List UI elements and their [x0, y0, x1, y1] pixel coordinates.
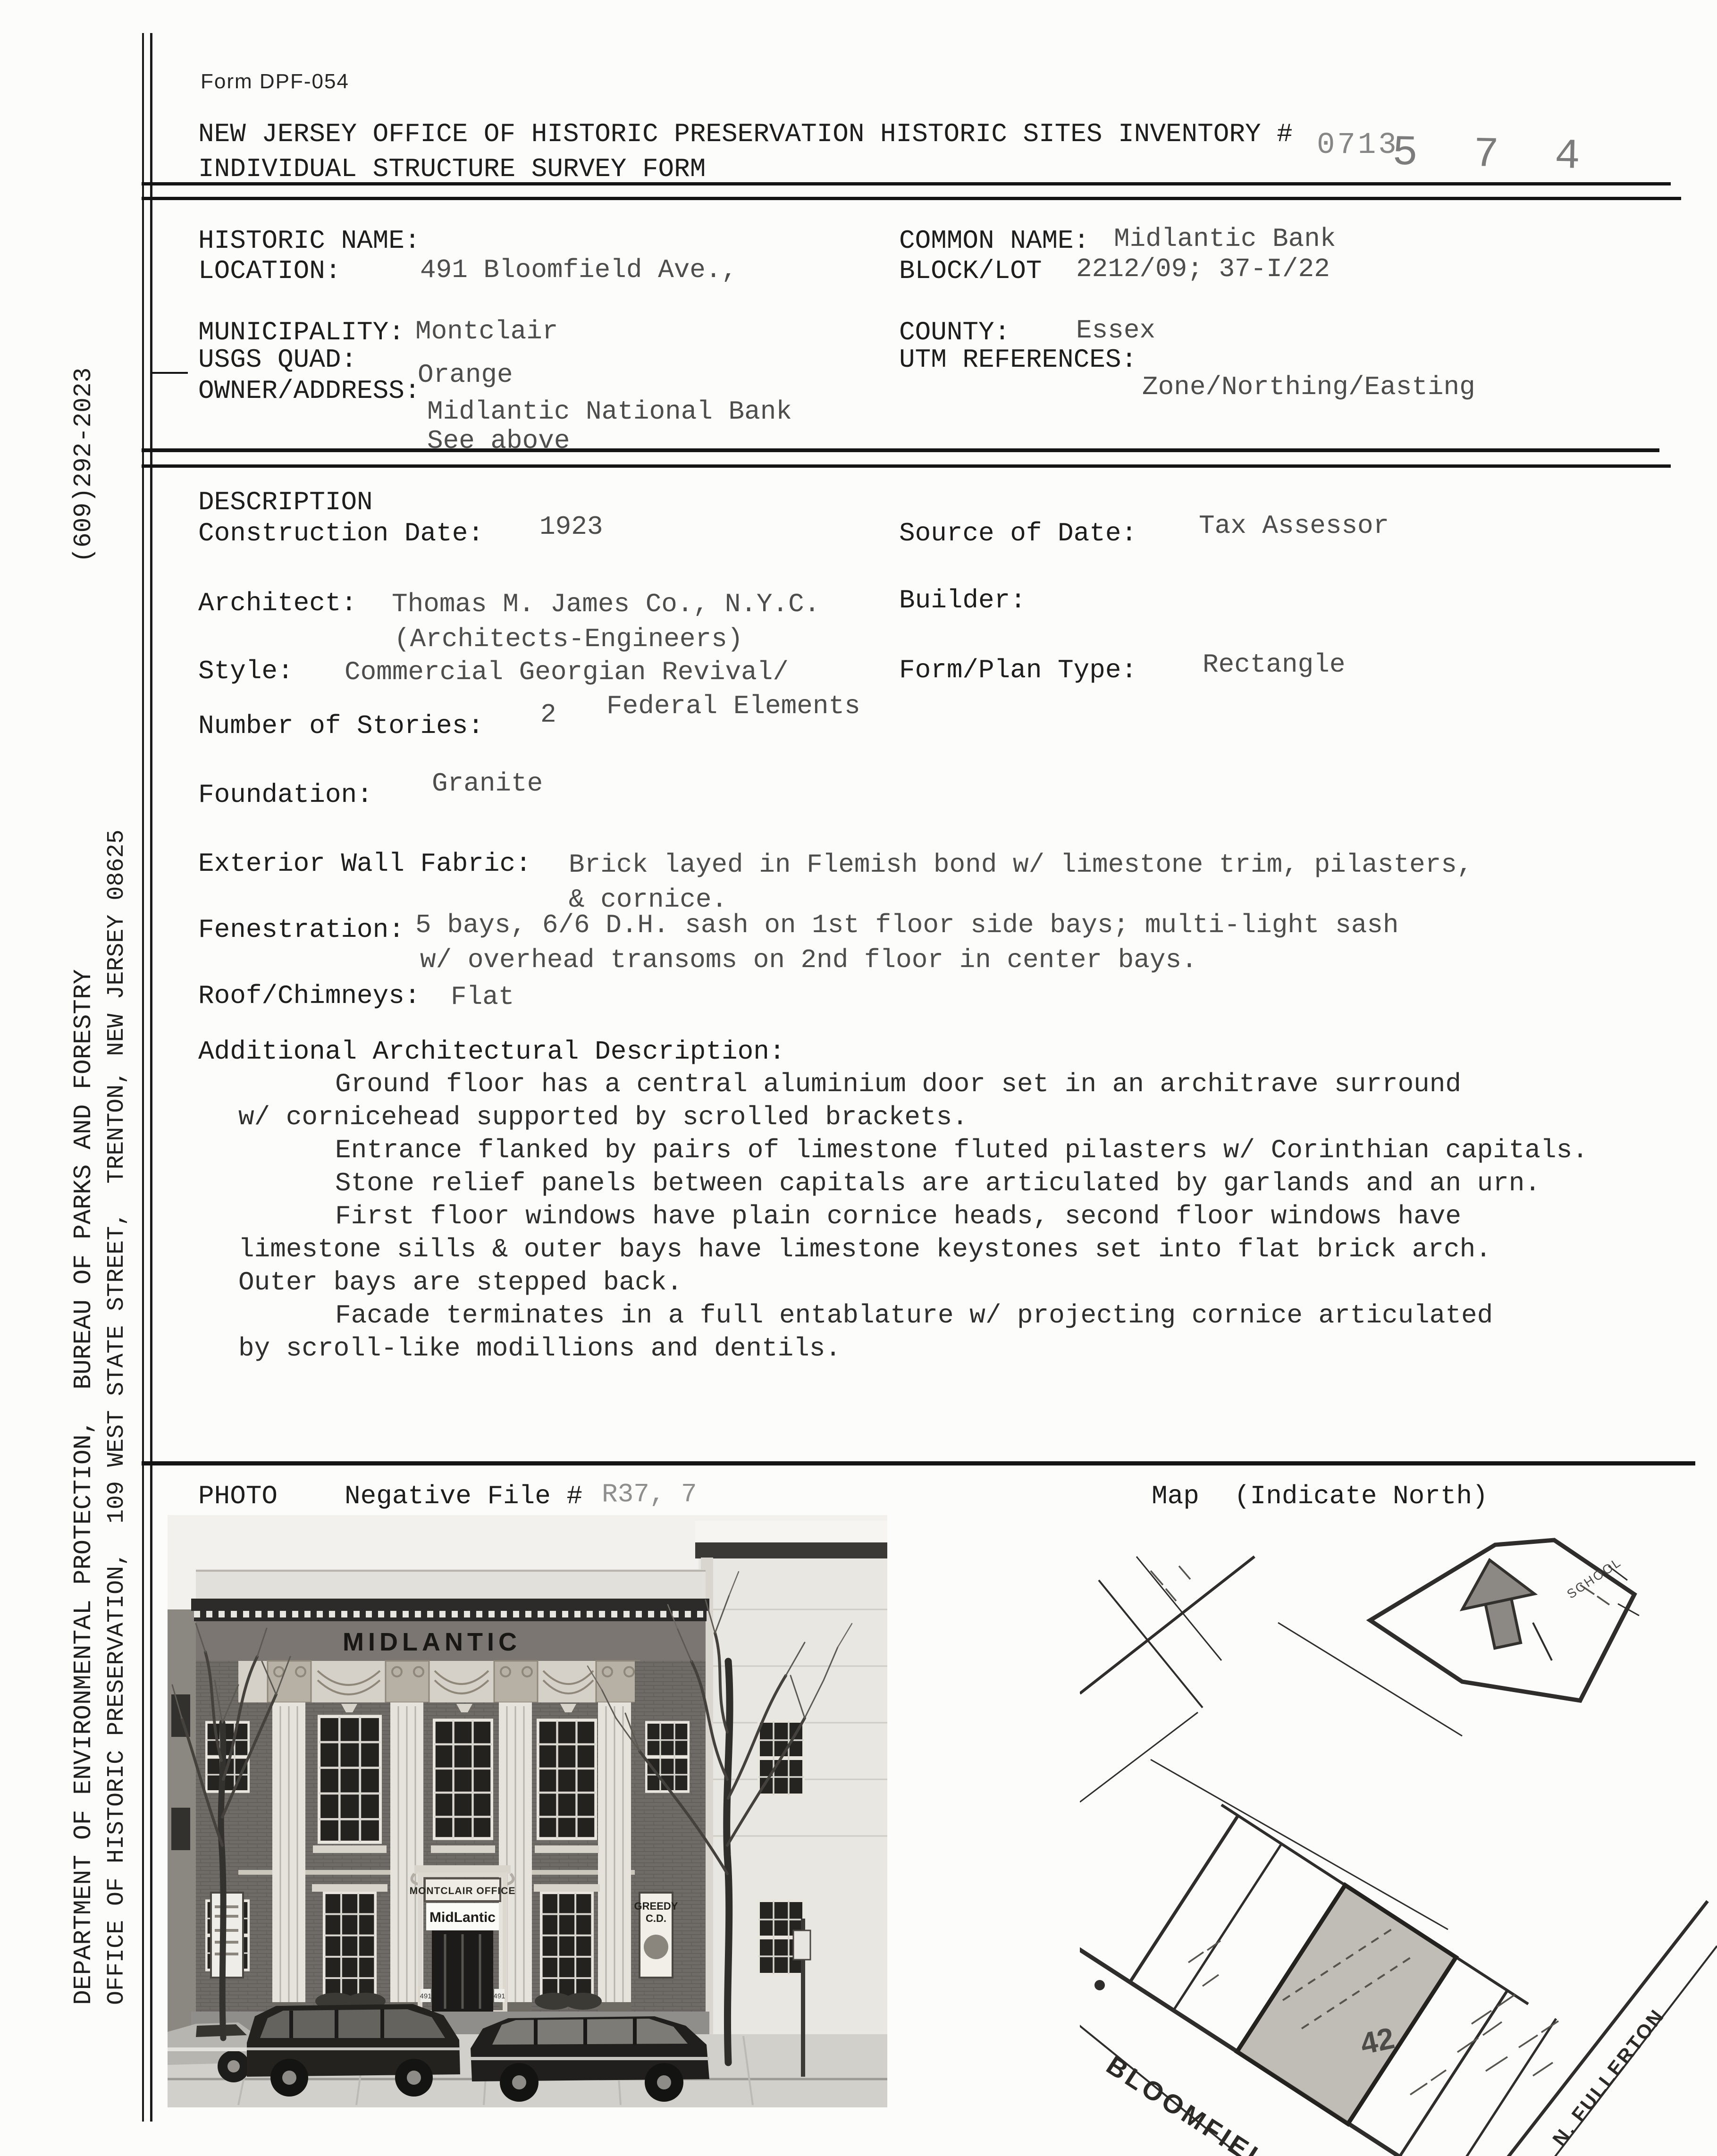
survey-form-page: DEPARTMENT OF ENVIRONMENTAL PROTECTION, … [0, 0, 1717, 2156]
additional-description-label: Additional Architectural Description: [198, 1036, 785, 1067]
number-of-stories-value: 2 [540, 699, 556, 730]
additional-line: Stone relief panels between capitals are… [335, 1168, 1540, 1198]
roof-chimneys-label: Roof/Chimneys: [198, 981, 420, 1011]
source-of-date-label: Source of Date: [899, 518, 1137, 548]
block-lot-label: BLOCK/LOT [899, 256, 1042, 286]
inventory-number-typed: 0713 [1317, 128, 1399, 162]
building-photo: MIDLANTIC [168, 1515, 887, 2107]
exterior-wall-value-line1: Brick layed in Flemish bond w/ limestone… [569, 850, 1473, 880]
foundation-label: Foundation: [198, 780, 373, 810]
usgs-quad-label: USGS QUAD: [198, 345, 357, 375]
fenestration-value-line2: w/ overhead transoms on 2nd floor in cen… [420, 945, 1197, 975]
additional-line: Entrance flanked by pairs of limestone f… [335, 1135, 1588, 1165]
additional-line: w/ cornicehead supported by scrolled bra… [238, 1102, 968, 1132]
roof-chimneys-value: Flat [451, 982, 514, 1012]
architect-label: Architect: [198, 588, 357, 618]
county-label: COUNTY: [899, 317, 1010, 347]
sidebar-phone-text: (609)292-2023 [70, 368, 97, 563]
location-value: 491 Bloomfield Ave., [420, 255, 737, 285]
construction-date-value: 1923 [539, 512, 603, 542]
additional-line: by scroll-like modillions and dentils. [238, 1333, 841, 1364]
negative-file-value: R37, 7 [602, 1479, 697, 1509]
additional-line: limestone sills & outer bays have limest… [238, 1234, 1491, 1264]
foundation-value: Granite [432, 768, 543, 799]
location-label: LOCATION: [198, 256, 341, 286]
map-label: Map [1152, 1481, 1199, 1511]
architect-value-line1: Thomas M. James Co., N.Y.C. [392, 589, 820, 619]
map-indicate-north-note: (Indicate North) [1234, 1481, 1488, 1511]
address-plaque-right: 491 [493, 1992, 505, 2000]
sidebar-office-text: OFFICE OF HISTORIC PRESERVATION, 109 WES… [104, 830, 130, 2005]
greedy-cd-poster-line2: C.D. [646, 1912, 666, 1924]
left-vertical-rule-inner [150, 33, 152, 2122]
construction-date-label: Construction Date: [198, 518, 484, 548]
identification-rule-bottom [142, 464, 1671, 468]
owner-value-line1: Midlantic National Bank [427, 396, 792, 427]
municipality-value: Montclair [415, 316, 558, 346]
montclair-office-sign: MONTCLAIR OFFICE [410, 1886, 516, 1896]
header-rule-top [142, 182, 1671, 185]
additional-line: Ground floor has a central aluminium doo… [335, 1069, 1461, 1099]
style-label: Style: [198, 656, 294, 686]
form-plan-type-label: Form/Plan Type: [899, 655, 1137, 685]
block-lot-value: 2212/09; 37-I/22 [1076, 254, 1330, 284]
common-name-value: Midlantic Bank [1114, 224, 1336, 254]
builder-label: Builder: [899, 585, 1026, 615]
form-number: Form DPF-054 [201, 70, 349, 93]
fenestration-label: Fenestration: [198, 915, 404, 945]
utm-references-value: Zone/Northing/Easting [1142, 372, 1475, 402]
additional-line: First floor windows have plain cornice h… [335, 1201, 1461, 1231]
address-plaque-left: 491 [420, 1992, 431, 2000]
form-plan-type-value: Rectangle [1203, 649, 1345, 680]
fenestration-value-line1: 5 bays, 6/6 D.H. sash on 1st floor side … [415, 910, 1399, 940]
municipality-label: MUNICIPALITY: [198, 317, 404, 347]
exterior-wall-label: Exterior Wall Fabric: [198, 849, 531, 879]
common-name-label: COMMON NAME: [899, 226, 1089, 256]
historic-name-label: HISTORIC NAME: [198, 226, 420, 256]
number-of-stories-label: Number of Stories: [198, 711, 484, 741]
left-margin-tick [151, 372, 188, 374]
photo-label: PHOTO [198, 1481, 278, 1511]
style-value-line1: Commercial Georgian Revival/ [345, 657, 789, 687]
location-map: BLOOMFIELD AV. N. FULLERTON SCHOOL 42 [1080, 1538, 1717, 2156]
utm-references-label: UTM REFERENCES: [899, 345, 1137, 375]
photo-section-rule [142, 1461, 1695, 1465]
form-title-line2: INDIVIDUAL STRUCTURE SURVEY FORM [198, 154, 706, 184]
header-rule-bottom [142, 197, 1681, 200]
map-parcel-number: 42 [1357, 2021, 1397, 2061]
inventory-number-handwritten: 5 7 4 [1392, 129, 1596, 182]
source-of-date-value: Tax Assessor [1199, 511, 1389, 541]
greedy-cd-poster-line1: GREEDY [634, 1900, 678, 1912]
additional-line: Facade terminates in a full entablature … [335, 1300, 1493, 1331]
description-section-title: DESCRIPTION [198, 487, 373, 517]
negative-file-label: Negative File # [345, 1481, 582, 1511]
county-value: Essex [1076, 315, 1155, 345]
form-title-line1: NEW JERSEY OFFICE OF HISTORIC PRESERVATI… [198, 119, 1293, 149]
owner-address-label: OWNER/ADDRESS: [198, 376, 420, 406]
midlantic-door-sign: MidLantic [429, 1910, 496, 1925]
sidebar-department-text: DEPARTMENT OF ENVIRONMENTAL PROTECTION, … [70, 969, 97, 2005]
architect-value-line2: (Architects-Engineers) [394, 624, 743, 654]
identification-rule-top [142, 448, 1659, 452]
left-vertical-rule-outer [142, 33, 144, 2122]
usgs-quad-value: Orange [418, 360, 513, 390]
additional-line: Outer bays are stepped back. [238, 1267, 682, 1297]
midlantic-entablature-sign: MIDLANTIC [343, 1628, 521, 1656]
style-value-line2: Federal Elements [606, 691, 860, 721]
